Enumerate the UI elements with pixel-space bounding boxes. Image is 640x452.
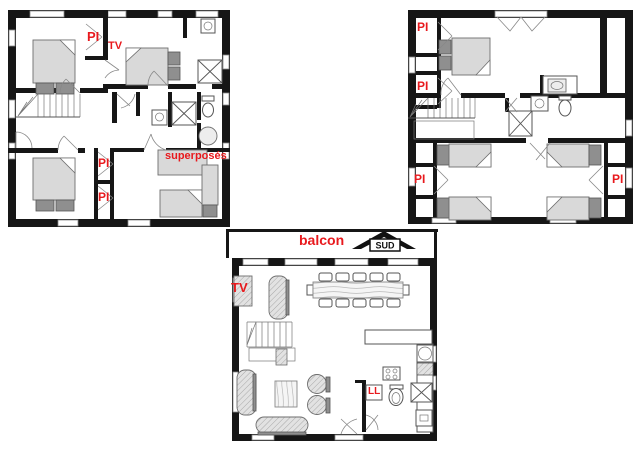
shower [198,60,222,83]
dining-table [307,282,409,298]
double-bed [439,38,490,75]
plan-upper-right [408,10,633,224]
sofa [237,370,256,415]
tv-label: TV [231,281,248,294]
closet-label-pi: PI [417,21,428,33]
toilet [389,385,403,406]
armchair [308,396,331,415]
sink [201,19,215,33]
french-window-swing [497,17,545,31]
stairs [408,98,475,139]
single-bed [547,197,601,220]
stairs [247,322,295,361]
shower [172,102,196,125]
stairs [16,94,80,117]
closet-label-pi: PI [612,173,623,185]
closet-label-pi: PI [417,80,428,92]
water-heater [416,410,432,426]
double-bed [33,40,75,94]
ottoman [256,417,308,435]
balcony-label: balcon [299,233,344,247]
plan-lower: SUD [226,229,438,441]
bunk-beds-label: superposés [165,151,227,162]
armchair [308,375,331,394]
toilet [202,96,214,117]
coffee-table [275,381,297,407]
vanity-sink [543,76,577,94]
toilet [559,96,571,116]
stove [383,367,400,380]
closet-label-pi: PI [87,30,99,43]
single-bed [437,197,491,220]
floor-plan-canvas: SUD [0,0,640,452]
sink [531,96,548,111]
closet-label-pi: PI [98,157,109,169]
wc-walls [355,380,366,432]
washbasin [199,127,217,145]
closet-label-pi: PI [98,191,109,203]
washing-machine-label: LL [368,387,380,397]
single-bed [547,144,601,167]
floor-plans-drawing: SUD [0,0,640,452]
sofa [269,276,289,319]
shower [509,111,532,136]
sink [152,110,167,125]
double-bed [33,158,75,211]
tv-label: TV [108,41,122,52]
double-bed [126,48,180,85]
single-bed [437,144,491,167]
door-arcs [341,415,378,434]
closet-label-pi: PI [414,173,425,185]
south-arrow-icon: SUD [352,231,416,251]
shelf [276,349,287,365]
south-label: SUD [375,241,395,251]
shower [411,383,432,402]
